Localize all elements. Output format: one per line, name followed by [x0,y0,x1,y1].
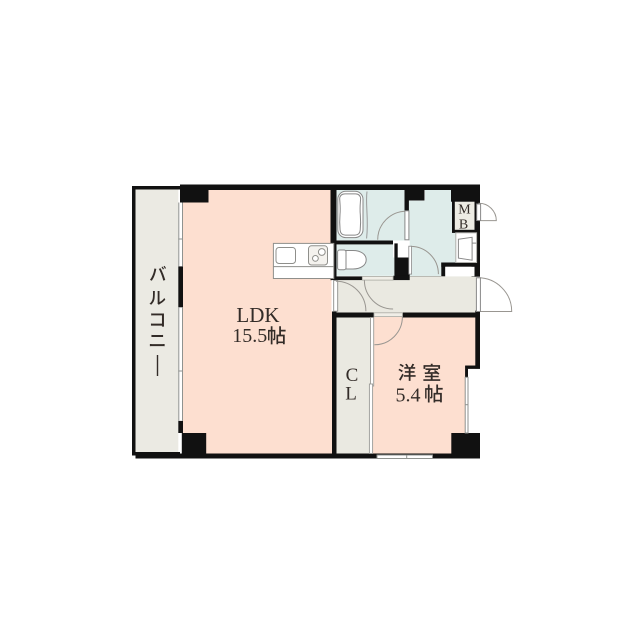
svg-text:LDK: LDK [236,303,279,327]
svg-text:B: B [459,218,468,233]
svg-text:L: L [345,384,357,405]
svg-text:15.5: 15.5 [232,325,267,347]
svg-text:M: M [458,203,471,218]
svg-text:5.4: 5.4 [396,385,421,407]
